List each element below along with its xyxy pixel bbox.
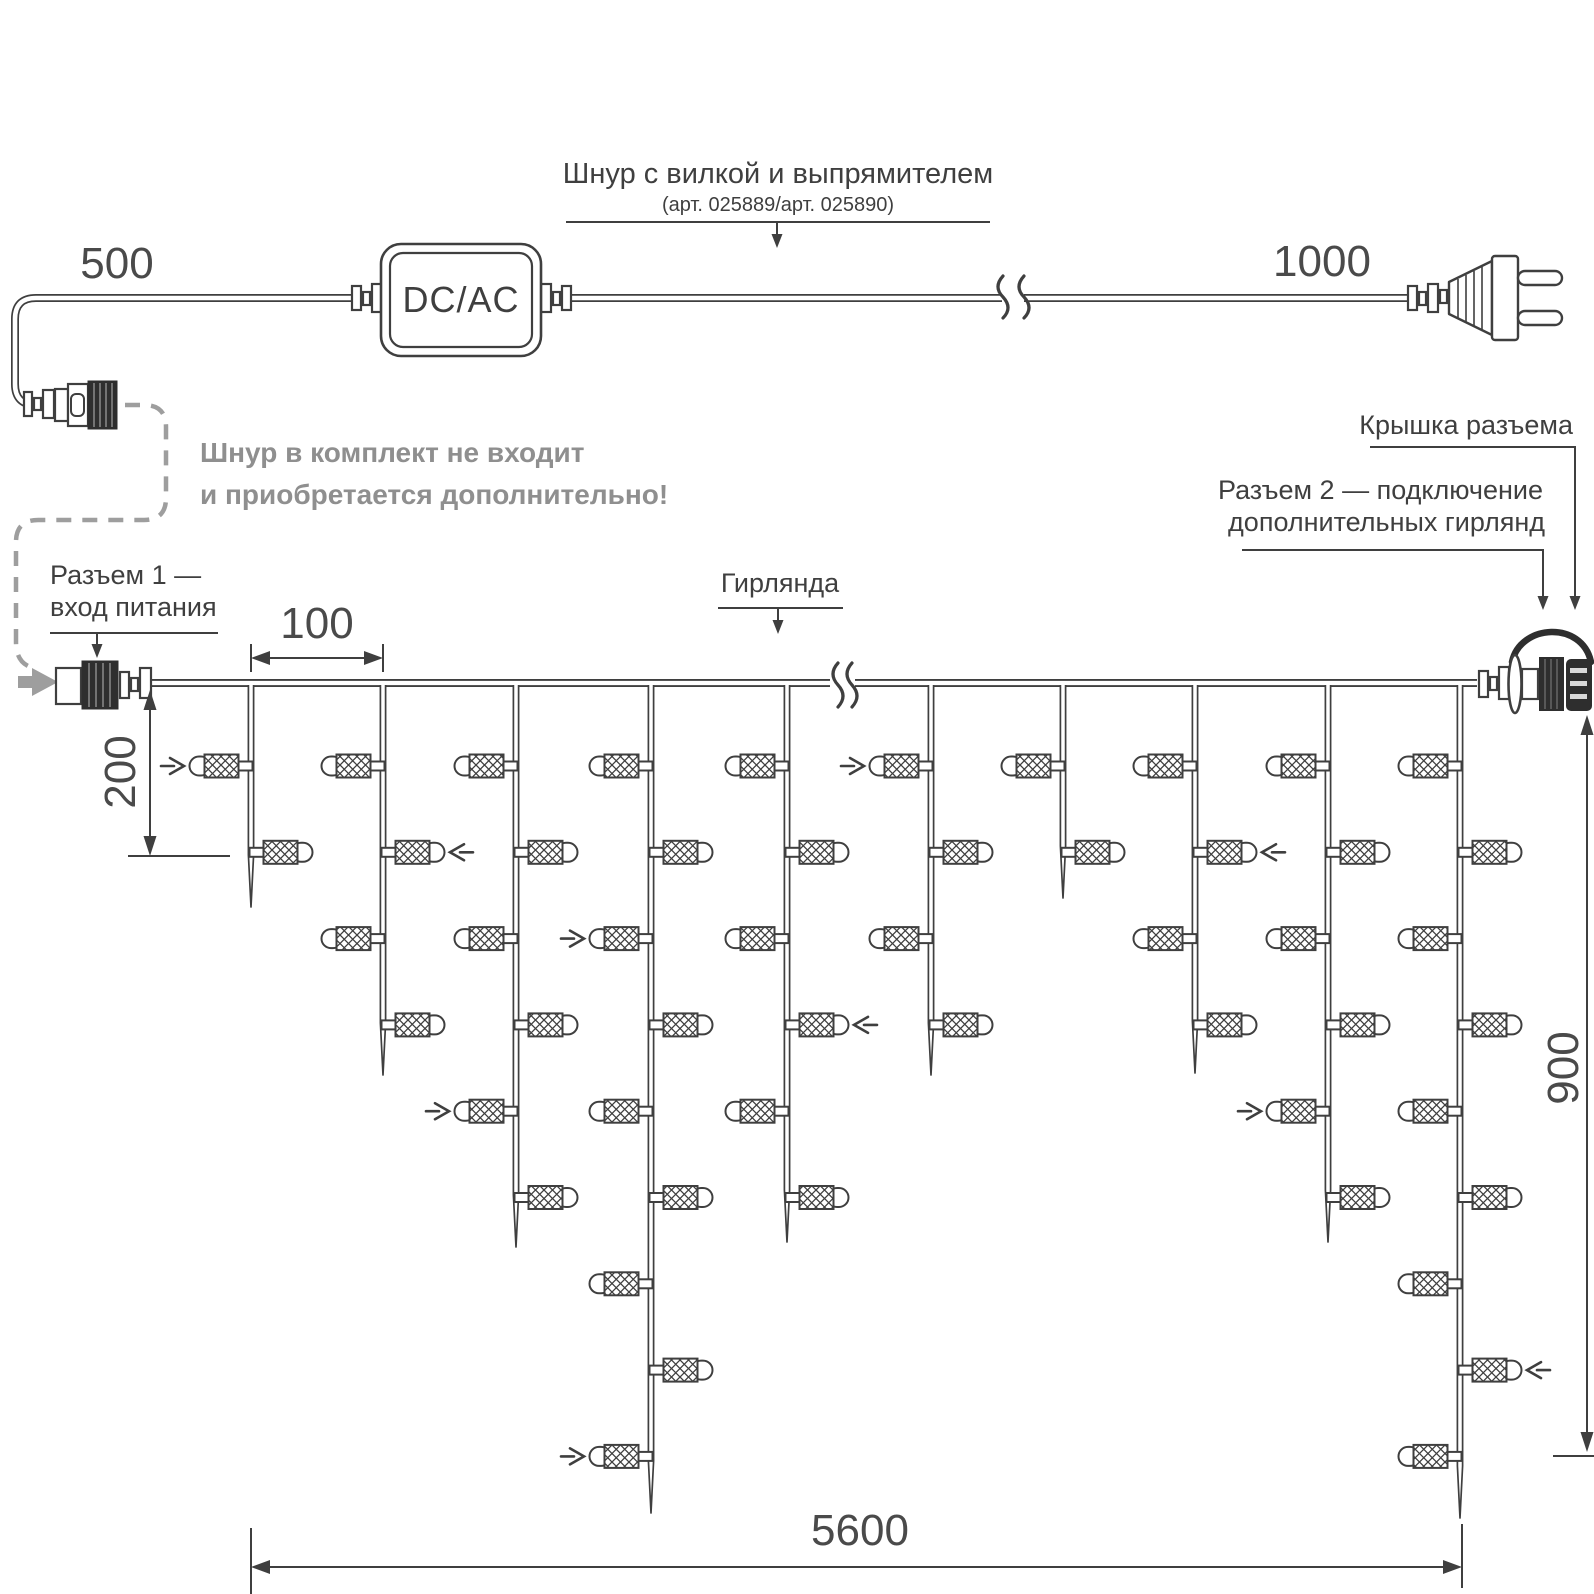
bulb-icon: [786, 841, 849, 864]
bulb-icon: [1134, 755, 1197, 778]
bulb-icon: [1194, 1013, 1257, 1036]
arrow-up-icon: [1581, 715, 1594, 735]
bulb-icon: [590, 1100, 653, 1123]
note-line1: Шнур в комплект не входит: [200, 437, 584, 468]
connector-1-power-input: [56, 661, 151, 709]
bulb-body: [1282, 755, 1316, 778]
cap-slot: [1570, 681, 1587, 686]
dim-1000-label: 1000: [1273, 237, 1371, 286]
coupler-rib: [363, 292, 370, 305]
garland-scheme-svg: DC/AC 500 1000 Шнур: [0, 0, 1594, 1594]
bulb-body: [470, 927, 504, 950]
bulb-body: [944, 1013, 978, 1036]
strand-1: [190, 685, 313, 907]
bulb-body: [264, 841, 298, 864]
bulb-body: [605, 927, 639, 950]
bulb-body: [664, 1186, 698, 1209]
bulb-body: [529, 1186, 563, 1209]
bulb-body: [1473, 1359, 1507, 1382]
dim-100-label: 100: [280, 599, 353, 648]
plug-face: [1492, 256, 1518, 340]
strand-wire: [248, 685, 253, 907]
arrow-down-icon: [1570, 596, 1581, 610]
garland-assembly: [56, 632, 1592, 1518]
bulb-icon: [455, 1100, 518, 1123]
arrow-right-icon: [1443, 1560, 1462, 1574]
coupler-rib: [1479, 671, 1488, 697]
dimension-900: 900: [1539, 715, 1594, 1456]
garland-label: Гирлянда: [721, 568, 840, 598]
bulb-body: [1414, 927, 1448, 950]
bulb-body: [529, 1013, 563, 1036]
arrow-down-icon: [1581, 1432, 1594, 1452]
arrow-down-icon: [1538, 596, 1549, 610]
bulb-icon: [515, 841, 578, 864]
connector-body: [56, 668, 81, 704]
bulb-icon: [250, 841, 313, 864]
connector1-label-line1: Разъем 1 —: [50, 560, 201, 590]
bulb-body: [1341, 1013, 1375, 1036]
bulb-icon: [786, 1186, 849, 1209]
bulb-icon: [515, 1013, 578, 1036]
bulb-body: [944, 841, 978, 864]
cord-article-numbers: (арт. 025889/арт. 025890): [662, 194, 894, 216]
strand-5: [726, 685, 849, 1242]
arrow-right-icon: [364, 651, 383, 665]
dim-900-label: 900: [1539, 1031, 1588, 1104]
bulb-body: [396, 841, 430, 864]
connector-2-extension: [1479, 632, 1592, 713]
bulb-body: [1473, 1186, 1507, 1209]
bulb-pointer-arrow-icon: [161, 758, 184, 774]
strand-8: [1134, 685, 1257, 1073]
bulb-icon: [1194, 841, 1257, 864]
plug-pin: [1518, 271, 1562, 285]
connector-thread-cap: [82, 661, 118, 709]
dim-5600-label: 5600: [811, 1506, 909, 1555]
bulb-icon: [650, 1186, 713, 1209]
strand-wire: [928, 685, 933, 1075]
dcac-label: DC/AC: [402, 279, 519, 320]
strand-2: [322, 685, 445, 1075]
bulb-pointer-arrow-icon: [426, 1103, 449, 1119]
callout-connector2: Разъем 2 — подключение дополнительных ги…: [1218, 475, 1549, 610]
diagram-canvas: DC/AC 500 1000 Шнур: [0, 0, 1594, 1594]
bulb-icon: [1459, 841, 1522, 864]
arrow-down-icon: [92, 644, 103, 658]
arrow-down-icon: [144, 836, 157, 856]
coupler-rib: [120, 672, 129, 698]
power-plug-icon: [1408, 256, 1562, 340]
bulb-icon: [1327, 841, 1390, 864]
bulb-icon: [726, 755, 789, 778]
bulb-body: [741, 755, 775, 778]
strand-10: [1399, 685, 1522, 1518]
bulb-icon: [1267, 755, 1330, 778]
bulb-icon: [1399, 927, 1462, 950]
bulb-body: [800, 1186, 834, 1209]
bulb-body: [741, 927, 775, 950]
dcac-converter: DC/AC: [352, 244, 571, 356]
dimension-100: 100: [251, 599, 383, 672]
arrow-down-icon: [772, 234, 783, 248]
arrow-left-icon: [251, 651, 270, 665]
bulb-icon: [1459, 1013, 1522, 1036]
coupler-rib: [352, 286, 361, 310]
dim-200-label: 200: [96, 735, 145, 808]
bulb-body: [605, 1272, 639, 1295]
cap-slot: [1570, 694, 1587, 699]
seal-ring: [1509, 655, 1522, 713]
bulb-icon: [1062, 841, 1125, 864]
bulb-body: [470, 755, 504, 778]
strand-6: [870, 685, 993, 1075]
strand-7: [1002, 685, 1125, 898]
bulb-pointer-arrow-icon: [841, 758, 864, 774]
bulb-body: [664, 1359, 698, 1382]
strand-wire: [1457, 685, 1462, 1518]
cord-output-connector: [24, 381, 117, 429]
note-line2: и приобретается дополнительно!: [200, 479, 668, 510]
bulb-pointer-arrow-icon: [561, 1448, 584, 1464]
bulb-body: [1208, 841, 1242, 864]
connector2-label-line2: дополнительных гирлянд: [1228, 507, 1545, 537]
plug-body: [1449, 261, 1492, 335]
bulb-body: [337, 927, 371, 950]
bulb-icon: [1459, 1359, 1522, 1382]
bulb-body: [741, 1100, 775, 1123]
bulb-icon: [322, 755, 385, 778]
bulb-icon: [870, 755, 933, 778]
bulb-icon: [726, 927, 789, 950]
bulb-pointer-arrow-icon: [1262, 844, 1285, 860]
bulb-pointer-arrow-icon: [854, 1017, 877, 1033]
power-cord-assembly: DC/AC 500 1000 Шнур: [15, 158, 1562, 429]
bulb-body: [205, 755, 239, 778]
coupler-rib: [562, 286, 571, 310]
bulb-icon: [1267, 1100, 1330, 1123]
bulb-icon: [650, 841, 713, 864]
bulb-body: [1149, 927, 1183, 950]
bulb-body: [885, 927, 919, 950]
bulb-pointer-arrow-icon: [561, 931, 584, 947]
connector-sleeve: [1522, 669, 1538, 699]
bulb-body: [800, 1013, 834, 1036]
bulb-icon: [650, 1013, 713, 1036]
cord-not-included-path: Шнур в комплект не входит и приобретаетс…: [16, 405, 668, 696]
cord-title: Шнур с вилкой и выпрямителем: [563, 158, 993, 190]
cap-slot: [1570, 668, 1587, 673]
plug-rib: [1408, 286, 1417, 310]
coupler-rib: [1490, 677, 1497, 690]
bulb-body: [337, 755, 371, 778]
strand-9: [1267, 685, 1390, 1242]
bulb-icon: [190, 755, 253, 778]
bulb-body: [1473, 841, 1507, 864]
bulb-icon: [590, 927, 653, 950]
bulb-body: [1341, 1186, 1375, 1209]
bulb-icon: [1399, 1100, 1462, 1123]
bulb-icon: [590, 1445, 653, 1468]
bulb-icon: [786, 1013, 849, 1036]
bulb-body: [1341, 841, 1375, 864]
strands-layer: [161, 685, 1550, 1518]
bulb-icon: [382, 841, 445, 864]
connector2-label-line1: Разъем 2 — подключение: [1218, 475, 1543, 505]
connector1-label-line2: вход питания: [50, 592, 217, 622]
connector-latch: [71, 394, 84, 416]
bulb-icon: [1459, 1186, 1522, 1209]
arrow-left-icon: [251, 1560, 270, 1574]
bulb-icon: [382, 1013, 445, 1036]
coupler-rib: [131, 678, 138, 691]
bulb-body: [1473, 1013, 1507, 1036]
bulb-body: [1414, 755, 1448, 778]
strand-3: [455, 685, 578, 1247]
cap-label: Крышка разъема: [1359, 410, 1574, 440]
bulb-body: [605, 1445, 639, 1468]
callout-connector1: Разъем 1 — вход питания: [50, 560, 218, 658]
bulb-body: [1414, 1100, 1448, 1123]
bulb-icon: [1134, 927, 1197, 950]
bulb-icon: [1327, 1013, 1390, 1036]
cord-callout: Шнур с вилкой и выпрямителем (арт. 02588…: [563, 158, 993, 248]
bulb-pointer-arrow-icon: [1238, 1103, 1261, 1119]
coupler-rib: [541, 284, 551, 312]
bulb-body: [1076, 841, 1110, 864]
bulb-icon: [1399, 1445, 1462, 1468]
plug-pin: [1518, 311, 1562, 325]
bulb-body: [1282, 1100, 1316, 1123]
plug-rib: [1440, 290, 1447, 303]
bulb-body: [470, 1100, 504, 1123]
strand-wire: [1060, 685, 1065, 898]
coupler-rib: [24, 392, 32, 416]
bulb-body: [605, 755, 639, 778]
bulb-body: [664, 1013, 698, 1036]
bulb-body: [1208, 1013, 1242, 1036]
bulb-body: [529, 841, 563, 864]
bulb-pointer-arrow-icon: [1527, 1362, 1550, 1378]
arrow-down-icon: [773, 620, 784, 634]
bulb-icon: [1399, 755, 1462, 778]
strand-wire: [1192, 685, 1197, 1073]
coupler-rib: [43, 390, 54, 418]
coupler-rib: [34, 398, 41, 410]
strand-4: [590, 685, 713, 1513]
bulb-body: [1149, 755, 1183, 778]
bulb-icon: [726, 1100, 789, 1123]
bulb-body: [885, 755, 919, 778]
bulb-pointer-arrow-icon: [450, 844, 473, 860]
strand-wire: [380, 685, 385, 1075]
bulb-body: [1282, 927, 1316, 950]
bulb-icon: [1399, 1272, 1462, 1295]
dashed-connection-line: [16, 405, 166, 666]
bulb-icon: [870, 927, 933, 950]
dimension-5600: 5600: [251, 1506, 1462, 1594]
callout-garland: Гирлянда: [718, 568, 843, 634]
bulb-body: [605, 1100, 639, 1123]
bulb-body: [664, 841, 698, 864]
gray-arrow-right-icon: [32, 668, 58, 696]
gray-arrow-tail: [18, 676, 32, 688]
bulb-body: [1017, 755, 1051, 778]
connector-sleeve: [55, 389, 68, 421]
bulb-icon: [515, 1186, 578, 1209]
bulb-body: [1414, 1272, 1448, 1295]
bulb-icon: [590, 1272, 653, 1295]
bulb-icon: [455, 927, 518, 950]
bulb-icon: [930, 841, 993, 864]
plug-rib: [1419, 292, 1426, 305]
dim-500-label: 500: [80, 239, 153, 288]
bulb-icon: [1327, 1186, 1390, 1209]
bulb-icon: [590, 755, 653, 778]
bulb-icon: [455, 755, 518, 778]
plug-rib: [1428, 284, 1438, 312]
bulb-icon: [650, 1359, 713, 1382]
bulb-icon: [930, 1013, 993, 1036]
connector-thread-cap: [88, 381, 117, 429]
bulb-body: [800, 841, 834, 864]
strand-wire: [648, 685, 653, 1513]
bulb-body: [396, 1013, 430, 1036]
bulb-icon: [322, 927, 385, 950]
bulb-body: [1414, 1445, 1448, 1468]
coupler-rib: [553, 292, 560, 305]
leader-line: [1242, 550, 1543, 598]
bulb-icon: [1267, 927, 1330, 950]
bulb-icon: [1002, 755, 1065, 778]
